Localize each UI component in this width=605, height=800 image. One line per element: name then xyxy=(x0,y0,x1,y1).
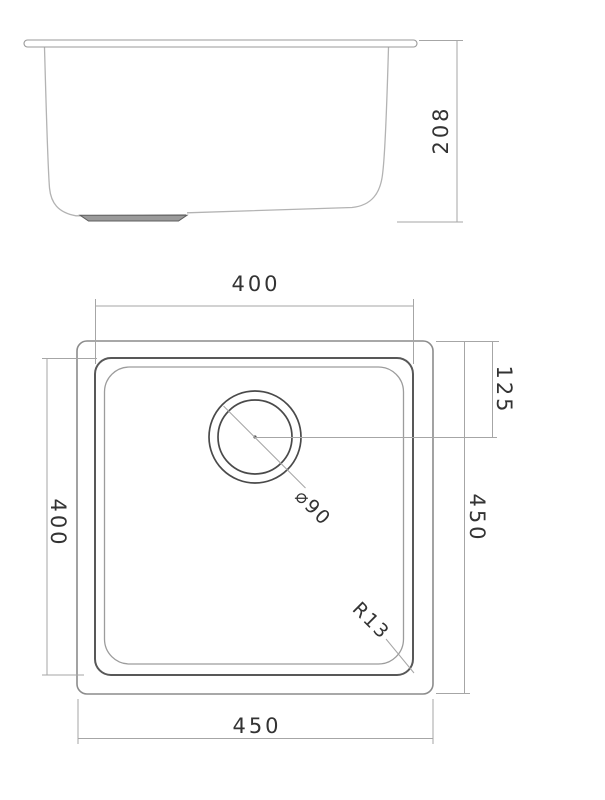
plan-view: ⌀90 400 400 450 xyxy=(42,272,516,744)
dim-left400-label: 400 xyxy=(46,498,70,547)
side-view-rim-bar xyxy=(24,40,417,47)
side-view-left-wall xyxy=(45,48,187,216)
r13-leader-line xyxy=(386,639,414,673)
drain-diameter-leader xyxy=(224,406,306,488)
drain-diameter-label: ⌀90 xyxy=(291,486,336,531)
dimension-bottom-450: 450 xyxy=(78,699,433,744)
dim-top400-label: 400 xyxy=(231,272,280,296)
r13-label: R13 xyxy=(348,598,394,644)
dim-125-label: 125 xyxy=(492,365,516,414)
dim-right450-label: 450 xyxy=(465,493,489,542)
dim-bottom450-label: 450 xyxy=(232,714,281,738)
dimension-top-400: 400 xyxy=(96,272,414,364)
side-elevation-view: 208 xyxy=(24,40,463,222)
dimension-right-450: 450 xyxy=(436,342,499,694)
side-view-drain-pad xyxy=(80,215,187,221)
technical-drawing-page: 208 ⌀90 400 xyxy=(0,0,605,800)
dimension-208: 208 xyxy=(397,41,463,223)
dimension-125: 125 xyxy=(492,342,516,438)
sink-drawing-svg: 208 ⌀90 400 xyxy=(0,0,605,800)
dimension-left-400: 400 xyxy=(42,359,97,676)
dim-208-label: 208 xyxy=(429,105,453,154)
side-view-right-wall xyxy=(187,48,389,213)
